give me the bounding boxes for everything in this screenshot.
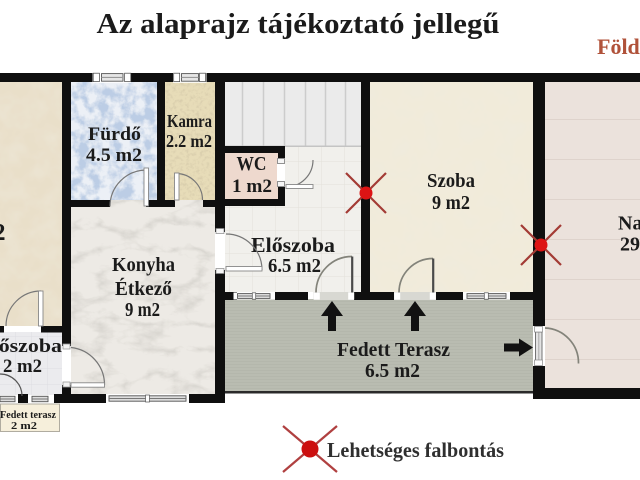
svg-text:1 m2: 1 m2 (232, 176, 272, 197)
svg-text:WC: WC (237, 153, 267, 175)
svg-text:Fürdő: Fürdő (88, 124, 141, 145)
svg-text:Kamra: Kamra (167, 111, 212, 131)
svg-text:Az alaprajz tájékoztató jelleg: Az alaprajz tájékoztató jellegű (97, 9, 500, 40)
svg-text:9 m2: 9 m2 (125, 299, 160, 321)
svg-text:2: 2 (0, 220, 6, 246)
svg-text:29 m2: 29 m2 (620, 234, 640, 256)
svg-text:Földszint: Földszint (597, 34, 640, 59)
svg-text:2.2 m2: 2.2 m2 (166, 131, 212, 151)
svg-text:2 m2: 2 m2 (11, 420, 38, 432)
svg-text:Étkező: Étkező (115, 277, 172, 300)
svg-text:Nappali: Nappali (618, 213, 640, 235)
svg-text:2 m2: 2 m2 (3, 356, 42, 377)
svg-text:Előszoba: Előszoba (0, 336, 63, 357)
svg-text:4.5 m2: 4.5 m2 (86, 145, 142, 166)
svg-text:Szoba: Szoba (427, 170, 475, 192)
svg-text:Előszoba: Előszoba (251, 233, 336, 257)
svg-text:Fedett Terasz: Fedett Terasz (337, 339, 450, 361)
svg-text:Konyha: Konyha (112, 254, 175, 276)
svg-text:9 m2: 9 m2 (432, 192, 470, 214)
svg-text:6.5 m2: 6.5 m2 (268, 255, 321, 277)
svg-text:6.5 m2: 6.5 m2 (365, 360, 420, 382)
svg-text:Lehetséges falbontás: Lehetséges falbontás (327, 438, 504, 462)
